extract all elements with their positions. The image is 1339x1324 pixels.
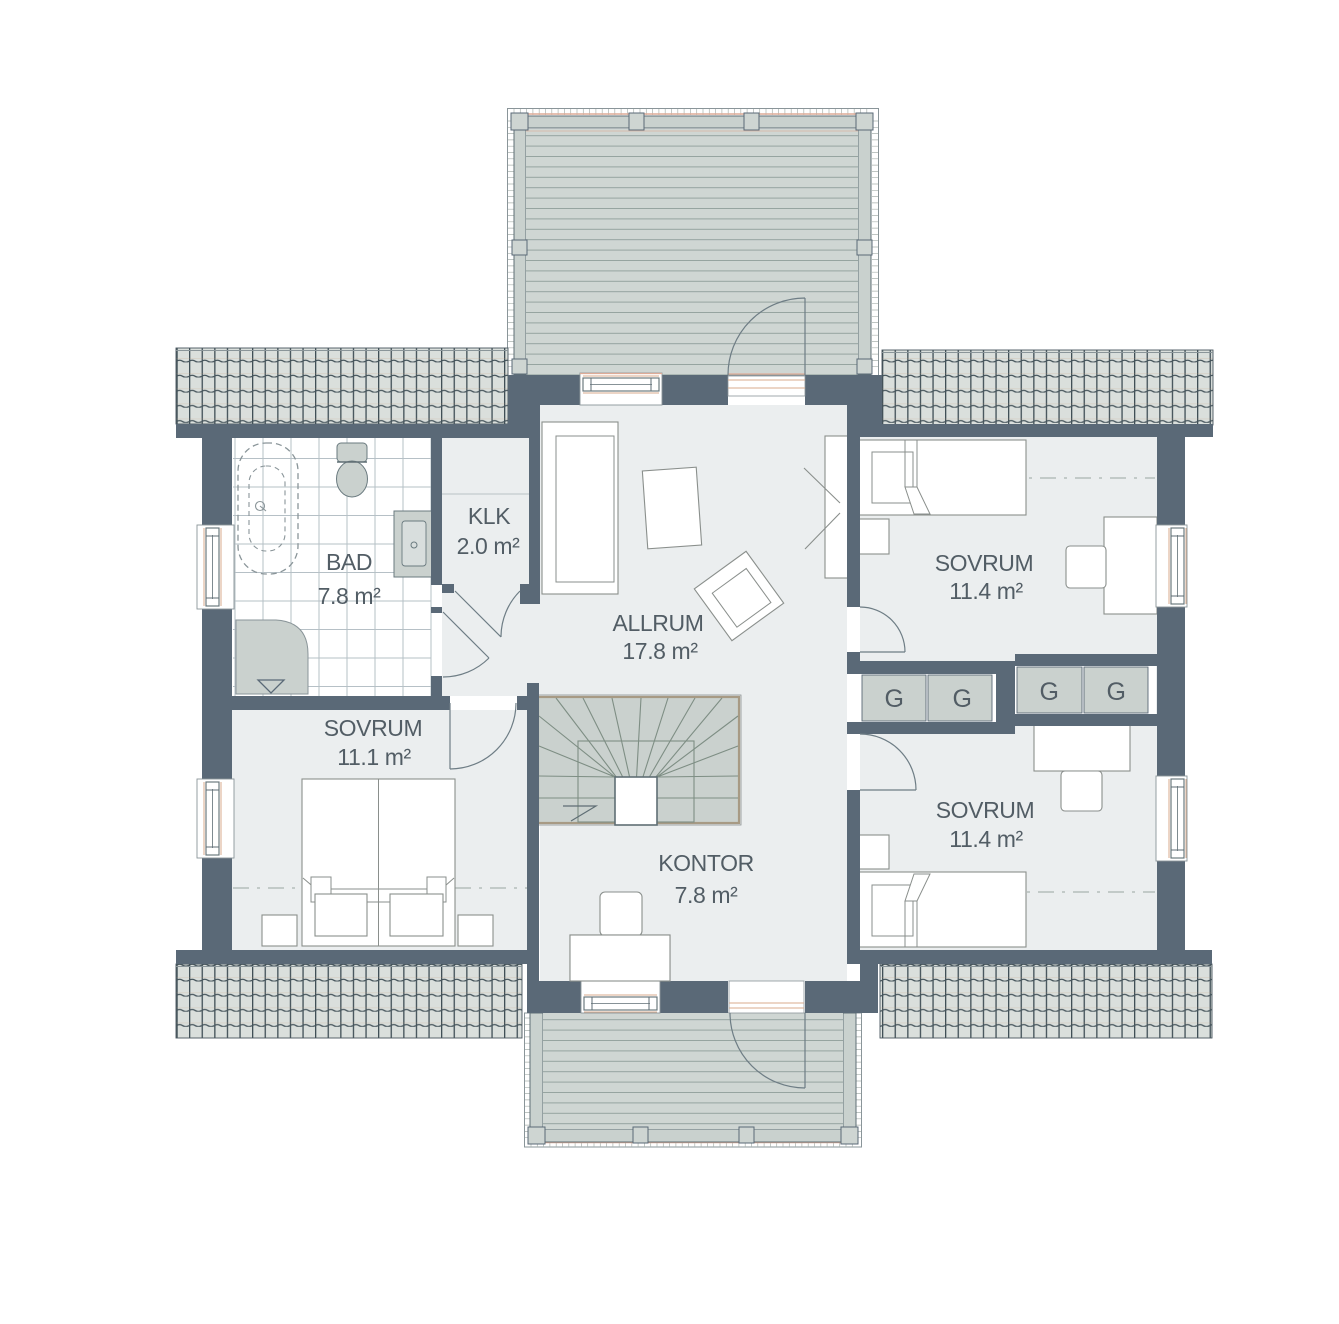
svg-text:G: G: [1039, 678, 1058, 706]
svg-text:SOVRUM: SOVRUM: [936, 797, 1035, 823]
svg-text:2.0 m²: 2.0 m²: [457, 533, 521, 559]
svg-text:G: G: [884, 685, 903, 713]
svg-text:SOVRUM: SOVRUM: [935, 550, 1034, 576]
svg-text:SOVRUM: SOVRUM: [324, 715, 423, 741]
svg-text:G: G: [952, 685, 971, 713]
svg-text:17.8 m²: 17.8 m²: [622, 638, 698, 664]
svg-text:G: G: [1106, 678, 1125, 706]
svg-text:KLK: KLK: [468, 503, 511, 529]
svg-text:11.4 m²: 11.4 m²: [949, 578, 1023, 604]
svg-text:BAD: BAD: [326, 549, 372, 575]
svg-text:11.1 m²: 11.1 m²: [337, 744, 411, 770]
svg-text:ALLRUM: ALLRUM: [613, 610, 704, 636]
svg-text:KONTOR: KONTOR: [658, 850, 754, 876]
svg-text:7.8 m²: 7.8 m²: [318, 583, 382, 609]
svg-text:7.8 m²: 7.8 m²: [675, 882, 739, 908]
svg-text:11.4 m²: 11.4 m²: [949, 826, 1023, 852]
